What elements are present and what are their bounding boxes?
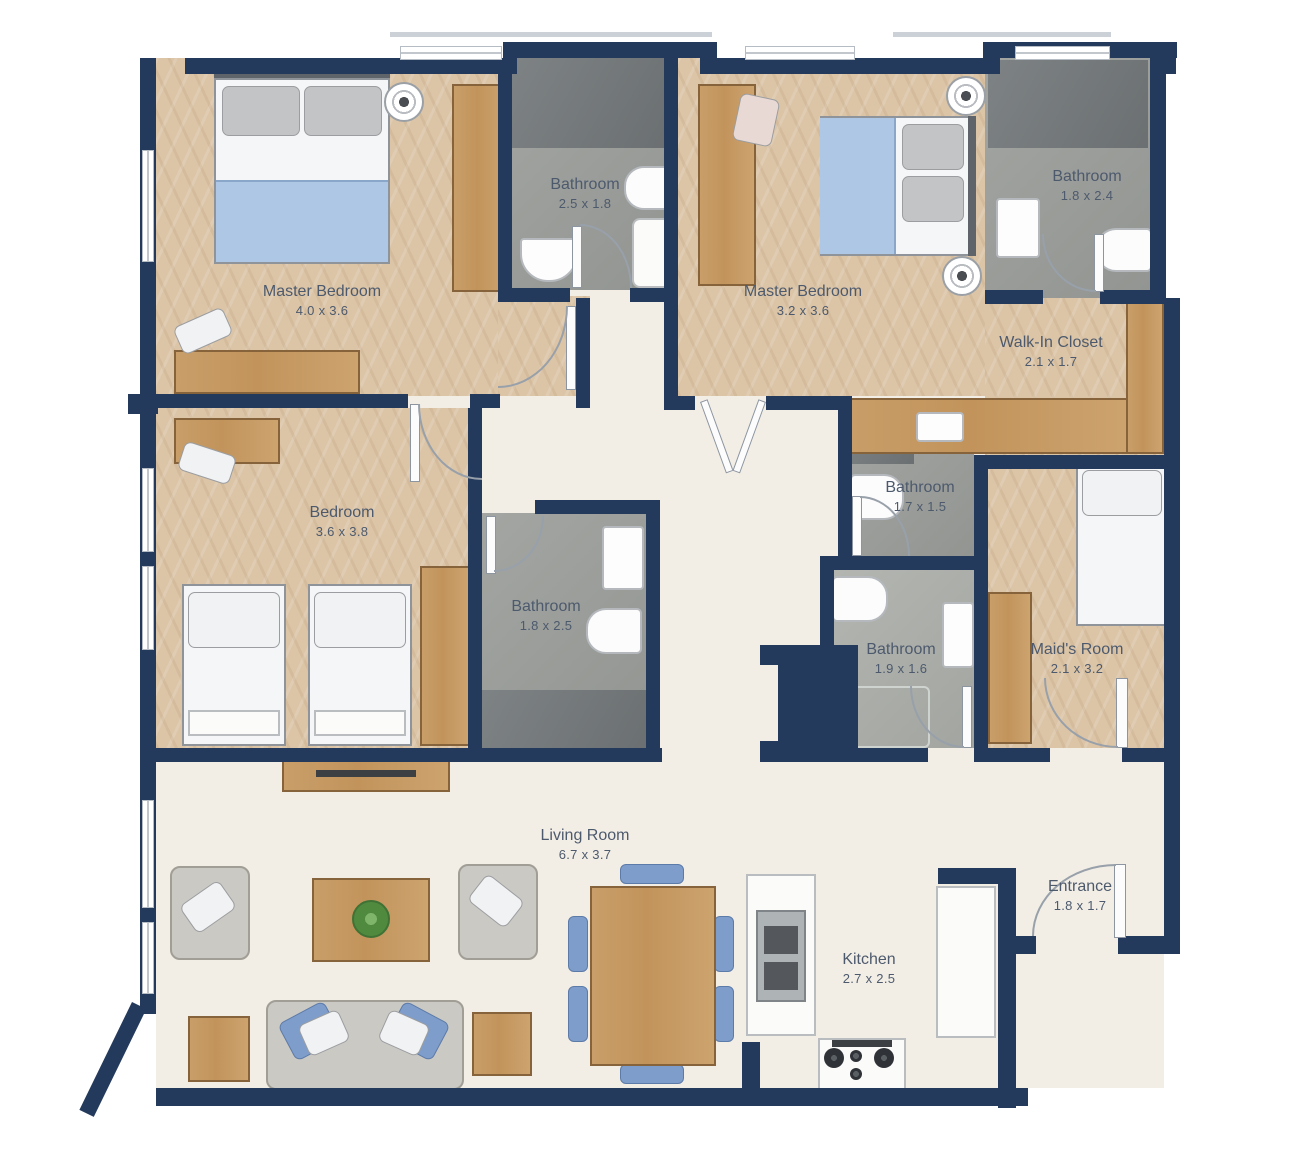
sink-symbol bbox=[602, 526, 644, 590]
dining-chair bbox=[714, 916, 734, 972]
room-label-kitchen: Kitchen 2.7 x 2.5 bbox=[842, 950, 895, 988]
room-size: 2.1 x 1.7 bbox=[999, 354, 1102, 371]
sink-basin bbox=[764, 926, 798, 954]
wall-segment bbox=[974, 455, 988, 762]
room-name: Bathroom bbox=[885, 478, 954, 499]
stove-panel bbox=[832, 1040, 892, 1047]
shower-area-bathroom-2 bbox=[988, 60, 1148, 148]
wall-segment bbox=[858, 748, 928, 762]
room-name: Entrance bbox=[1048, 877, 1112, 898]
room-size: 2.1 x 3.2 bbox=[1031, 661, 1124, 678]
floor-plan-canvas: Master Bedroom 4.0 x 3.6 Bathroom 2.5 x … bbox=[0, 0, 1302, 1170]
balcony-rail bbox=[390, 32, 712, 37]
wall-segment bbox=[1164, 755, 1180, 953]
wall-segment bbox=[185, 58, 515, 74]
wall-segment bbox=[646, 513, 660, 762]
wall-segment bbox=[1122, 748, 1180, 762]
pillow bbox=[902, 124, 964, 170]
room-label-master-bedroom-1: Master Bedroom 4.0 x 3.6 bbox=[263, 282, 381, 320]
pillow bbox=[314, 592, 406, 648]
room-label-bathroom-2: Bathroom 1.8 x 2.4 bbox=[1052, 167, 1121, 205]
window bbox=[142, 922, 154, 994]
wall-segment bbox=[156, 748, 662, 762]
room-size: 3.2 x 3.6 bbox=[744, 303, 862, 320]
room-name: Bedroom bbox=[310, 503, 375, 524]
wall-segment bbox=[576, 298, 590, 408]
bed-headboard bbox=[968, 116, 976, 256]
bed-duvet bbox=[820, 118, 896, 254]
sink-symbol bbox=[916, 412, 964, 442]
wall-segment bbox=[985, 290, 1043, 304]
wall-segment bbox=[79, 1002, 146, 1117]
wardrobe-maid bbox=[988, 592, 1032, 744]
wall-segment bbox=[820, 556, 988, 570]
ceiling-lamp-symbol bbox=[384, 82, 424, 122]
wall-segment bbox=[535, 500, 660, 514]
window bbox=[745, 46, 855, 60]
kitchen-counter bbox=[936, 886, 996, 1038]
sink-basin bbox=[764, 962, 798, 990]
wall-segment bbox=[938, 868, 1016, 884]
shower-area-bathroom-3 bbox=[482, 690, 646, 748]
stove-burner bbox=[874, 1048, 894, 1068]
service-shaft bbox=[778, 663, 858, 743]
room-label-bathroom-4: Bathroom 1.7 x 1.5 bbox=[885, 478, 954, 516]
pillow bbox=[902, 176, 964, 222]
console-handle bbox=[316, 770, 416, 777]
sink-symbol bbox=[942, 602, 974, 668]
room-name: Master Bedroom bbox=[744, 282, 862, 303]
wall-segment bbox=[156, 394, 408, 408]
closet-wardrobe-side bbox=[1126, 302, 1164, 454]
room-label-master-bedroom-2: Master Bedroom 3.2 x 3.6 bbox=[744, 282, 862, 320]
wall-segment bbox=[700, 58, 1000, 74]
room-size: 1.9 x 1.6 bbox=[866, 661, 935, 678]
wall-segment bbox=[838, 396, 852, 570]
room-size: 2.5 x 1.8 bbox=[550, 196, 619, 213]
pillow bbox=[1082, 470, 1162, 516]
room-size: 4.0 x 3.6 bbox=[263, 303, 381, 320]
wall-segment bbox=[983, 42, 997, 74]
window bbox=[142, 800, 154, 908]
wall-segment bbox=[1016, 936, 1036, 954]
toilet-symbol bbox=[832, 576, 888, 622]
toilet-symbol bbox=[1096, 228, 1152, 272]
dining-chair bbox=[568, 916, 588, 972]
room-size: 3.6 x 3.8 bbox=[310, 524, 375, 541]
wall-segment bbox=[630, 288, 678, 302]
wall-segment bbox=[998, 884, 1016, 1108]
wardrobe-bedroom bbox=[420, 566, 470, 746]
dining-table bbox=[590, 886, 716, 1066]
bed-duvet bbox=[216, 180, 388, 262]
bed-foot bbox=[314, 710, 406, 736]
wall-segment bbox=[156, 1088, 1028, 1106]
room-name: Master Bedroom bbox=[263, 282, 381, 303]
pillow bbox=[222, 86, 300, 136]
wall-segment bbox=[498, 58, 512, 300]
dining-chair bbox=[620, 864, 684, 884]
sink-symbol bbox=[996, 198, 1040, 258]
room-name: Walk-In Closet bbox=[999, 333, 1102, 354]
wall-segment bbox=[974, 455, 1180, 469]
wall-segment bbox=[1164, 298, 1180, 458]
window bbox=[142, 150, 154, 262]
dresser-master-1 bbox=[174, 350, 360, 394]
room-label-bathroom-5: Bathroom 1.9 x 1.6 bbox=[866, 640, 935, 678]
room-size: 1.8 x 2.5 bbox=[511, 618, 580, 635]
room-size: 1.8 x 2.4 bbox=[1052, 188, 1121, 205]
door-leaf bbox=[566, 306, 576, 390]
pillow bbox=[188, 592, 280, 648]
toilet-symbol bbox=[586, 608, 642, 654]
window bbox=[142, 566, 154, 650]
room-size: 2.7 x 2.5 bbox=[842, 971, 895, 988]
window bbox=[142, 468, 154, 552]
room-name: Kitchen bbox=[842, 950, 895, 971]
room-name: Bathroom bbox=[550, 175, 619, 196]
wall-segment bbox=[664, 396, 695, 410]
wall-segment bbox=[820, 570, 834, 650]
wall-segment bbox=[1150, 58, 1166, 304]
room-size: 1.8 x 1.7 bbox=[1048, 898, 1112, 915]
side-table bbox=[472, 1012, 532, 1076]
ceiling-lamp-symbol bbox=[946, 76, 986, 116]
balcony-rail bbox=[893, 32, 1111, 37]
room-label-entrance: Entrance 1.8 x 1.7 bbox=[1048, 877, 1112, 915]
dining-chair bbox=[714, 986, 734, 1042]
dining-chair bbox=[568, 986, 588, 1042]
room-size: 1.7 x 1.5 bbox=[885, 499, 954, 516]
room-label-bathroom-3: Bathroom 1.8 x 2.5 bbox=[511, 597, 580, 635]
stove-burner bbox=[850, 1050, 862, 1062]
side-table bbox=[188, 1016, 250, 1082]
ceiling-lamp-symbol bbox=[942, 256, 982, 296]
wall-segment bbox=[664, 58, 678, 410]
room-name: Maid's Room bbox=[1031, 640, 1124, 661]
wall-segment bbox=[1164, 455, 1180, 755]
window bbox=[1015, 46, 1110, 60]
wall-segment bbox=[498, 288, 570, 302]
wall-segment bbox=[988, 748, 1050, 762]
window bbox=[400, 46, 502, 60]
service-shaft bbox=[760, 645, 858, 665]
room-size: 6.7 x 3.7 bbox=[541, 847, 630, 864]
room-label-bathroom-1: Bathroom 2.5 x 1.8 bbox=[550, 175, 619, 213]
wall-segment bbox=[1100, 290, 1164, 304]
room-label-living-room: Living Room 6.7 x 3.7 bbox=[541, 826, 630, 864]
room-name: Bathroom bbox=[866, 640, 935, 661]
room-label-bedroom: Bedroom 3.6 x 3.8 bbox=[310, 503, 375, 541]
wall-segment bbox=[742, 1042, 760, 1104]
stove-burner bbox=[824, 1048, 844, 1068]
pillow bbox=[304, 86, 382, 136]
bed-foot bbox=[188, 710, 280, 736]
service-shaft bbox=[760, 741, 858, 762]
shower-area-bathroom-1 bbox=[512, 58, 664, 148]
room-name: Bathroom bbox=[1052, 167, 1121, 188]
room-name: Bathroom bbox=[511, 597, 580, 618]
dining-chair bbox=[620, 1064, 684, 1084]
room-name: Living Room bbox=[541, 826, 630, 847]
wall-segment bbox=[1118, 936, 1180, 954]
wall-segment bbox=[505, 42, 717, 58]
room-label-maids-room: Maid's Room 2.1 x 3.2 bbox=[1031, 640, 1124, 678]
closet-wardrobe-run bbox=[838, 398, 1132, 454]
plant-symbol bbox=[352, 900, 390, 938]
stove-burner bbox=[850, 1068, 862, 1080]
room-label-walk-in-closet: Walk-In Closet 2.1 x 1.7 bbox=[999, 333, 1102, 371]
